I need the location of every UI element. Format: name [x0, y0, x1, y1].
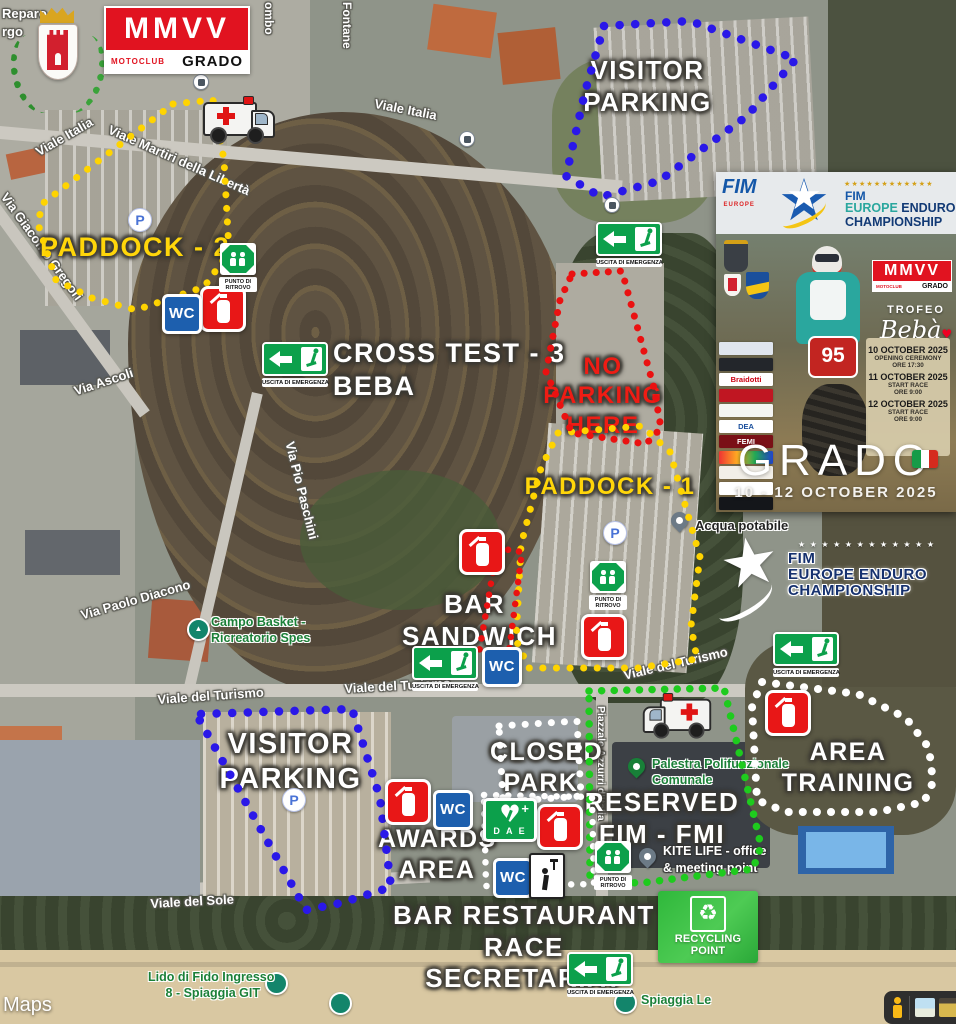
fim-badge-region: EUROPE	[722, 196, 756, 214]
recycling-sign: ♻ RECYCLING POINT	[658, 891, 758, 963]
emergency-exit-icon	[596, 222, 662, 256]
schedule-event: START RACE	[866, 409, 950, 416]
wc-icon: WC	[482, 647, 522, 687]
emergency-exit-icon	[412, 646, 478, 680]
emergency-exit-sign: USCITA DI EMERGENZA	[412, 646, 478, 691]
bus-stop-icon[interactable]	[193, 74, 209, 90]
city-crest	[12, 6, 104, 122]
emergency-exit-icon	[262, 342, 328, 376]
emergency-exit-caption: USCITA DI EMERGENZA	[412, 682, 478, 691]
zone-outline-visitor-parking-top	[566, 21, 796, 197]
schedule-event: START RACE	[866, 382, 950, 389]
grado-shield	[746, 272, 769, 299]
sponsor-logo: DEA	[719, 420, 773, 433]
wc-icon: WC	[493, 858, 533, 898]
motoclub-logo-small: MMVV MOTOCLUB GRADO	[872, 260, 952, 292]
fire-extinguisher-icon	[581, 614, 627, 660]
meeting-point-caption: PUNTO DI RITROVO	[589, 595, 627, 610]
motoclub-logo-city: GRADO	[182, 53, 243, 70]
emergency-exit-sign: USCITA DI EMERGENZA	[773, 632, 839, 677]
meeting-point-icon	[220, 243, 256, 275]
streetview-control[interactable]	[884, 991, 956, 1024]
emergency-exit-sign: USCITA DI EMERGENZA	[567, 952, 633, 997]
zone-outline-paddock2	[38, 100, 229, 310]
rider-goggles	[815, 254, 839, 262]
meeting-point-sign: PUNTO DI RITROVO	[594, 841, 632, 890]
schedule-time: ORE 9:00	[866, 416, 950, 423]
caption-line: RITROVO	[594, 883, 632, 889]
sponsor-logo	[719, 404, 773, 417]
motoclub-logo-city: GRADO	[922, 283, 948, 290]
motoclub-logo-sub: MOTOCLUB	[111, 57, 165, 66]
fire-extinguisher-icon	[385, 779, 431, 825]
sponsor-logo	[719, 389, 773, 402]
parking-icon[interactable]: P	[603, 521, 627, 545]
shower-icon	[529, 853, 565, 899]
sponsor-logo	[719, 342, 773, 355]
crown-icon	[40, 6, 74, 23]
shield-icon	[38, 24, 78, 80]
meeting-point-icon	[595, 841, 631, 873]
italy-flag-icon	[912, 450, 938, 468]
race-number-plate: 95	[808, 336, 858, 378]
poster-title-enduro: ENDURO	[898, 201, 956, 215]
emergency-exit-caption: USCITA DI EMERGENZA	[596, 258, 662, 267]
emergency-exit-caption: USCITA DI EMERGENZA	[262, 378, 328, 387]
fim-logo-line: FIM	[788, 550, 815, 567]
emergency-exit-caption: USCITA DI EMERGENZA	[567, 988, 633, 997]
pegman-icon[interactable]	[891, 997, 902, 1019]
schedule-time: ORE 9:00	[866, 389, 950, 396]
bus-stop-icon[interactable]	[459, 131, 475, 147]
fire-extinguisher-icon	[200, 286, 246, 332]
fmi-logo	[724, 240, 748, 272]
ambulance-icon	[203, 90, 275, 144]
bus-stop-icon[interactable]	[604, 197, 620, 213]
fim-championship-logo: ★ ★ ★ ★ ★ ★ ★ ★ ★ ★ ★ ★ ★ FIM EUROPE END…	[712, 524, 948, 624]
emergency-exit-icon	[773, 632, 839, 666]
emergency-exit-caption: USCITA DI EMERGENZA	[773, 668, 839, 677]
schedule-event: OPENING CEREMONY	[866, 355, 950, 362]
parking-icon[interactable]: P	[128, 208, 152, 232]
rider-chest	[810, 280, 846, 320]
poster-title-line: CHAMPIONSHIP	[845, 215, 942, 229]
meeting-point-sign: PUNTO DI RITROVO	[219, 243, 257, 292]
schedule-date: 11 OCTOBER 2025	[866, 372, 950, 382]
meeting-point-icon	[590, 561, 626, 593]
city-crest-small	[724, 274, 741, 296]
sponsor-logo	[719, 358, 773, 371]
caption-line: RITROVO	[589, 603, 627, 609]
fim-badge-name: FIM	[722, 176, 756, 198]
stars-row: ★★★★★★★★★★★★	[844, 180, 934, 188]
emergency-exit-sign: USCITA DI EMERGENZA	[262, 342, 328, 387]
map-thumbnail[interactable]	[939, 998, 956, 1017]
motoclub-logo: MMVV MOTOCLUB GRADO	[104, 6, 250, 74]
zone-outline-no-parking	[546, 271, 661, 444]
motoclub-logo-main: MMVV	[873, 261, 951, 281]
emergency-exit-sign: USCITA DI EMERGENZA	[596, 222, 662, 267]
cross-icon: +	[521, 801, 529, 816]
motoclub-logo-sub: MOTOCLUB	[876, 284, 902, 289]
schedule-date: 12 OCTOBER 2025	[866, 399, 950, 409]
wc-icon: WC	[162, 294, 202, 334]
sponsor-logo: Braidotti	[719, 373, 773, 386]
fire-extinguisher-icon	[537, 804, 583, 850]
fire-extinguisher-icon	[459, 529, 505, 575]
fim-europe-badge: FIM EUROPE	[722, 178, 756, 214]
parking-icon[interactable]: P	[282, 788, 306, 812]
event-map: Reparo rgo Viale Italia Viale Martiri de…	[0, 0, 956, 1024]
poster-date-range: 10 - 12 OCTOBER 2025	[716, 484, 956, 501]
zone-outlines	[0, 0, 956, 1024]
schedule-time: ORE 17:30	[866, 362, 950, 369]
emergency-exit-icon	[567, 952, 633, 986]
fim-logo-line: CHAMPIONSHIP	[788, 582, 911, 599]
event-poster: FIM EUROPE ★★ ★★★★★★★★★★★★ FIM EUROPE EN…	[716, 172, 956, 512]
trofeo-label: TROFEO	[880, 304, 952, 316]
meeting-point-caption: PUNTO DI RITROVO	[219, 277, 257, 292]
motoclub-logo-main: MMVV	[106, 8, 248, 50]
meeting-point-sign: PUNTO DI RITROVO	[589, 561, 627, 610]
schedule-date: 10 OCTOBER 2025	[866, 345, 950, 355]
poster-title-europe: EUROPE	[845, 201, 898, 215]
dae-icon: ♥ + D A E	[483, 798, 537, 842]
google-maps-logo[interactable]: Maps	[3, 994, 52, 1017]
recycling-caption: RECYCLING POINT	[658, 933, 758, 957]
fire-extinguisher-icon	[765, 690, 811, 736]
fim-logo-line: EUROPE ENDURO	[788, 566, 927, 583]
poster-title-line: EUROPE ENDURO	[845, 201, 955, 215]
caption-line: RITROVO	[219, 285, 257, 291]
meeting-point-caption: PUNTO DI RITROVO	[594, 875, 632, 890]
zone-outline-closed-park	[499, 721, 581, 802]
ambulance-icon	[643, 687, 711, 738]
recycling-icon: ♻	[690, 896, 726, 932]
stars-row: ★ ★ ★ ★ ★ ★ ★ ★ ★ ★ ★ ★	[798, 540, 935, 549]
wc-icon: WC	[433, 790, 473, 830]
star-icon: ★★	[778, 172, 830, 234]
map-thumbnail[interactable]	[915, 998, 935, 1017]
